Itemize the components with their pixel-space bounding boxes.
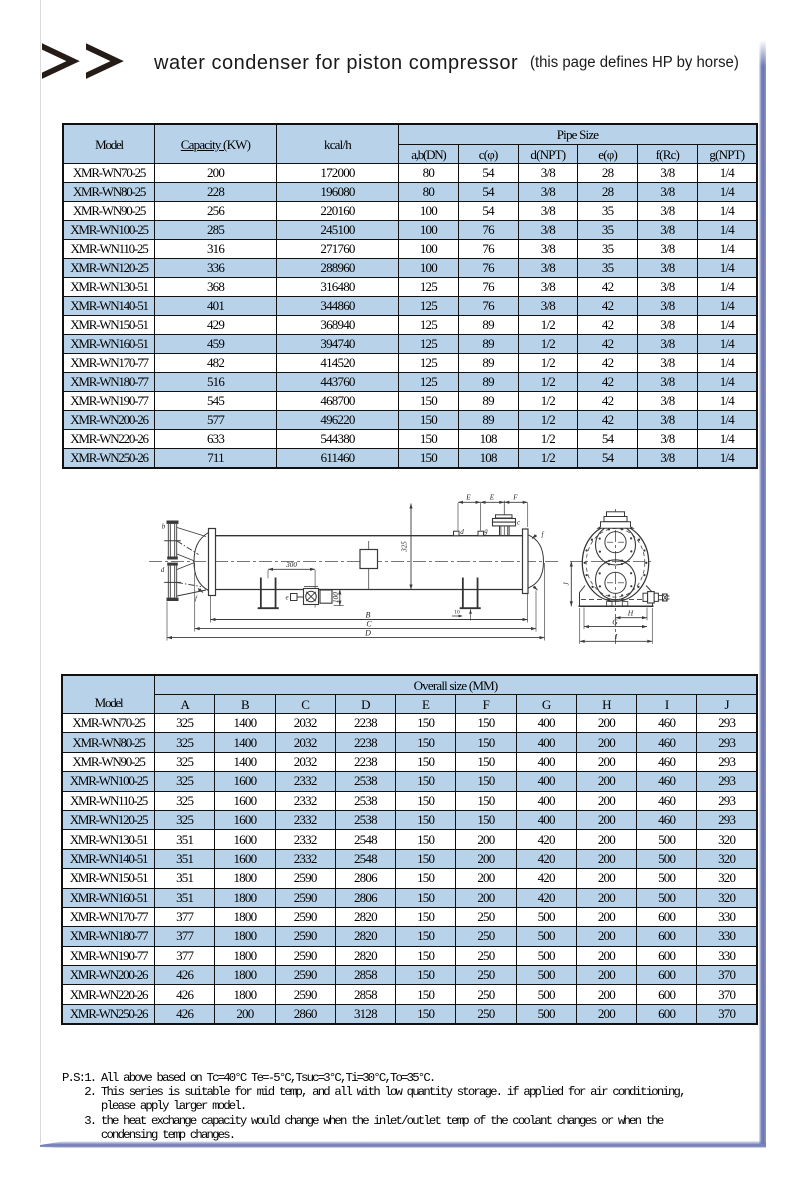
svg-text:D: D: [364, 628, 371, 637]
svg-text:10: 10: [454, 610, 460, 616]
svg-text:b: b: [162, 523, 166, 531]
svg-text:I: I: [614, 632, 618, 641]
svg-text:E: E: [489, 494, 495, 502]
svg-text:e: e: [285, 594, 288, 602]
svg-text:C: C: [366, 619, 372, 628]
svg-text:d: d: [161, 566, 165, 574]
svg-text:325: 325: [401, 541, 409, 553]
svg-text:H: H: [627, 609, 634, 618]
svg-text:f: f: [195, 595, 198, 602]
svg-text:J: J: [562, 582, 570, 586]
svg-text:B: B: [366, 610, 371, 619]
svg-text:f: f: [542, 531, 545, 539]
svg-text:E: E: [465, 494, 471, 502]
svg-text:d: d: [460, 528, 464, 536]
svg-text:G: G: [612, 617, 618, 626]
svg-text:F: F: [512, 494, 518, 502]
svg-text:300: 300: [285, 561, 297, 569]
svg-text:c: c: [517, 519, 521, 527]
svg-text:g: g: [484, 527, 488, 535]
svg-text:100: 100: [332, 592, 340, 603]
